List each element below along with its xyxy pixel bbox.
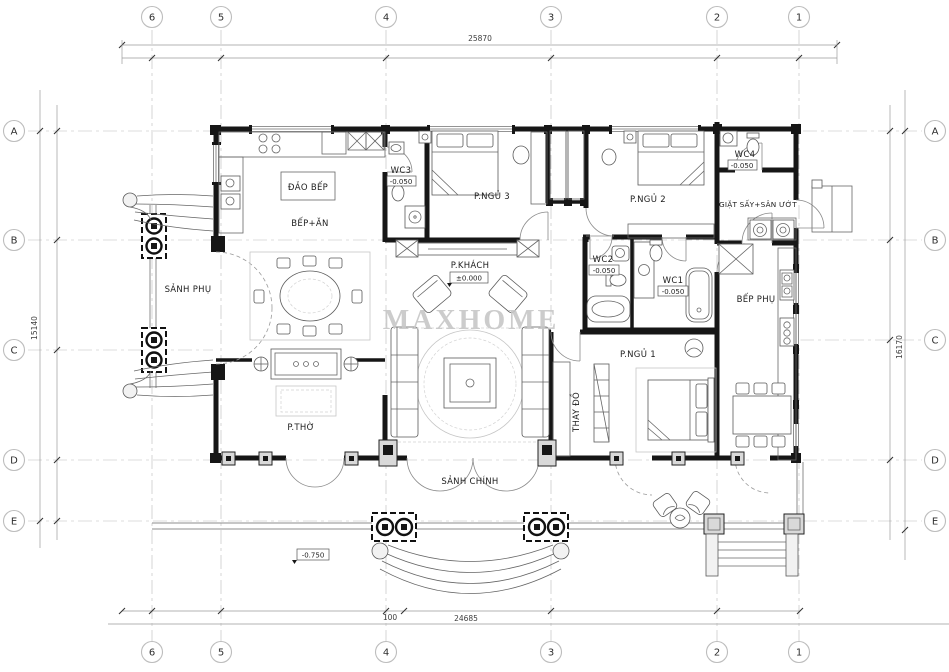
- grid-row-d-r: D: [931, 456, 939, 467]
- dim-left: 15140: [30, 316, 39, 340]
- level-wc2: -0.050: [593, 267, 616, 275]
- level-wc1: -0.050: [662, 288, 685, 296]
- label-wc3: WC3: [391, 166, 412, 176]
- grid-col-4b: 4: [383, 648, 389, 659]
- grid-row-a: A: [11, 127, 18, 138]
- furniture-kitchen2: [719, 244, 796, 460]
- grid-col-6b: 6: [149, 648, 155, 659]
- grid-bubbles-top: 6 5 4 3 2 1: [142, 7, 810, 28]
- grid-col-1: 1: [796, 13, 802, 24]
- grid-bubbles-bottom: 6 5 4 3 2 1: [142, 642, 810, 663]
- dim-top: 25870: [468, 34, 492, 43]
- grid-row-d: D: [10, 456, 18, 467]
- grid-col-2: 2: [714, 13, 720, 24]
- furniture-wc4-laundry: [720, 131, 796, 240]
- grid-col-6: 6: [149, 13, 155, 24]
- grid-bubbles-right: A B C D E: [925, 121, 946, 532]
- grid-col-3b: 3: [548, 648, 554, 659]
- label-kitchen: BẾP+ĂN: [291, 217, 328, 229]
- label-bed1: P.NGỦ 1: [620, 348, 656, 360]
- label-kitchen-island: ĐẢO BẾP: [288, 181, 328, 193]
- dim-bottom: 24685: [454, 614, 478, 623]
- label-bed2: P.NGỦ 2: [630, 193, 666, 205]
- furniture-kitchen: [219, 132, 385, 340]
- label-laundry: GIẶT SẤY+SÂN ƯỚT: [719, 199, 797, 209]
- grid-row-e: E: [11, 517, 17, 528]
- label-bed3: P.NGỦ 3: [474, 190, 510, 202]
- grid-bubbles-left: A B C D E: [4, 121, 25, 532]
- label-wc1: WC1: [663, 276, 684, 286]
- grid-row-b-r: B: [932, 236, 939, 247]
- label-living: P.KHÁCH: [451, 259, 490, 271]
- grid-row-c: C: [11, 346, 18, 357]
- west-porch: [123, 193, 213, 398]
- label-wc4: WC4: [735, 150, 756, 160]
- grid-col-1b: 1: [796, 648, 802, 659]
- furniture-bed2: [602, 131, 714, 238]
- window-kitchen-west: [212, 142, 221, 185]
- label-kitchen2: BẾP PHỤ: [737, 293, 776, 305]
- label-worship: P.THỜ: [287, 421, 314, 433]
- grid-col-2b: 2: [714, 648, 720, 659]
- east-exterior-stair: [812, 180, 852, 232]
- grid-row-b: B: [11, 236, 18, 247]
- grid-col-3: 3: [548, 13, 554, 24]
- grid-row-c-r: C: [932, 336, 939, 347]
- facade-piers: [222, 440, 744, 466]
- dim-bottom-inner: 100: [383, 613, 398, 622]
- grid-col-5b: 5: [218, 648, 224, 659]
- label-main-hall: SẢNH CHÍNH: [441, 475, 498, 487]
- grid-col-4: 4: [383, 13, 389, 24]
- level-living: ±0.000: [456, 275, 482, 283]
- level-wc4: -0.050: [731, 162, 754, 170]
- label-side-hall: SẢNH PHỤ: [165, 283, 212, 295]
- grid-col-5: 5: [218, 13, 224, 24]
- floor-plan-sheet: 25870 24685 100 15140 16170 6 5 4 3 2 1 …: [0, 0, 949, 672]
- grid-row-e-r: E: [932, 517, 938, 528]
- label-closet: THAY ĐỒ: [569, 392, 582, 433]
- label-wc2: WC2: [593, 255, 614, 265]
- window-kitchen-north: [249, 125, 334, 134]
- dim-right: 16170: [895, 335, 904, 359]
- terrace-furniture: [652, 490, 712, 528]
- level-porch: -0.750: [302, 552, 325, 560]
- main-stair: [550, 131, 584, 199]
- watermark: MAXHOME: [383, 305, 560, 336]
- grid-row-a-r: A: [932, 127, 939, 138]
- level-wc3: -0.050: [390, 178, 413, 186]
- furniture-worship: [254, 349, 358, 416]
- floor-plan-drawing: 25870 24685 100 15140 16170 6 5 4 3 2 1 …: [0, 0, 949, 672]
